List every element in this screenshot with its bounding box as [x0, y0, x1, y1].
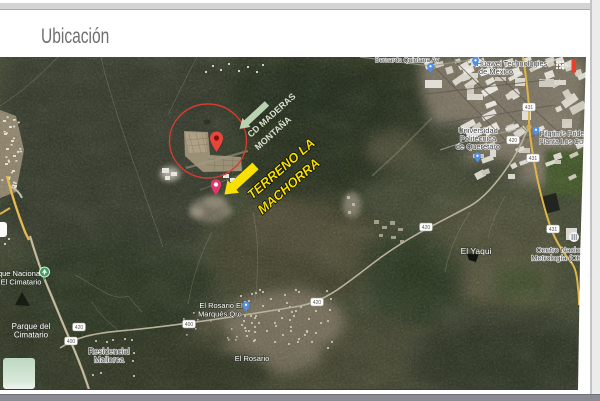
svg-text:de Querétaro: de Querétaro: [456, 142, 500, 151]
svg-text:431: 431: [525, 105, 534, 111]
svg-text:431: 431: [529, 156, 538, 162]
svg-text:Mallorca: Mallorca: [94, 356, 125, 365]
svg-text:El Cimatario: El Cimatario: [1, 278, 42, 287]
svg-text:de México: de México: [479, 67, 513, 76]
svg-text:400: 400: [185, 322, 194, 328]
svg-text:Bernardo Quintana Av: Bernardo Quintana Av: [375, 57, 440, 64]
svg-text:420: 420: [509, 138, 518, 144]
svg-text:Planta Los Cu: Planta Los Cu: [539, 139, 583, 146]
svg-text:Marqués Qro.: Marqués Qro.: [198, 310, 244, 319]
svg-text:Cimatario: Cimatario: [14, 331, 49, 340]
svg-text:431: 431: [549, 227, 558, 233]
svg-text:El Yaqui: El Yaqui: [461, 246, 492, 256]
svg-text:El Rosario: El Rosario: [235, 354, 270, 363]
svg-text:Metrología (CENAM): Metrología (CENAM): [531, 254, 600, 263]
svg-text:400: 400: [67, 339, 76, 345]
svg-text:420: 420: [75, 325, 84, 331]
svg-text:Pilgrim's Pride: Pilgrim's Pride: [540, 131, 585, 138]
svg-text:420: 420: [313, 300, 322, 306]
svg-text:420: 420: [422, 225, 431, 231]
